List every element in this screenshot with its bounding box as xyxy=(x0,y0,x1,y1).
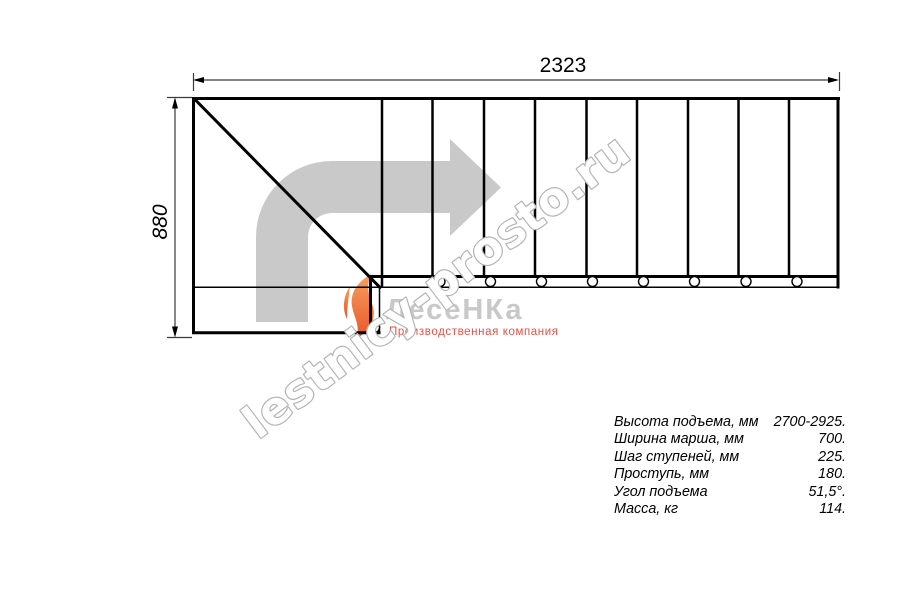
spec-value: 180. xyxy=(818,466,846,483)
bolt-circle xyxy=(792,277,802,287)
spec-row: Масса, кг 114. xyxy=(614,501,846,518)
spec-table: Высота подъема, мм 2700-2925. Ширина мар… xyxy=(614,414,846,518)
bolt-circle xyxy=(741,277,751,287)
logo-flame-small-icon xyxy=(344,286,350,319)
dim-arrowhead xyxy=(193,77,204,83)
dim-width-label: 2323 xyxy=(540,54,587,77)
spec-value: 2700-2925. xyxy=(774,414,846,431)
spec-row: Высота подъема, мм 2700-2925. xyxy=(614,414,846,431)
spec-row: Шаг ступеней, мм 225. xyxy=(614,449,846,466)
spec-label: Угол подъема xyxy=(614,484,708,501)
dim-arrowhead xyxy=(828,77,839,83)
dim-arrowhead xyxy=(172,327,178,338)
staircase-drawing-page: ЛесеНКа Производственная компания xyxy=(0,0,900,600)
spec-label: Шаг ступеней, мм xyxy=(614,449,739,466)
dim-arrowhead xyxy=(172,98,178,109)
spec-value: 700. xyxy=(818,431,846,448)
spec-row: Проступь, мм 180. xyxy=(614,466,846,483)
spec-label: Высота подъема, мм xyxy=(614,414,759,431)
spec-label: Ширина марша, мм xyxy=(614,431,744,448)
bolt-circle xyxy=(537,277,547,287)
spec-value: 225. xyxy=(818,449,846,466)
spec-value: 51,5°. xyxy=(808,484,846,501)
spec-row: Ширина марша, мм 700. xyxy=(614,431,846,448)
dim-height-label: 880 xyxy=(149,204,172,239)
spec-value: 114. xyxy=(819,501,846,518)
bolt-circle xyxy=(639,277,649,287)
spec-row: Угол подъема 51,5°. xyxy=(614,484,846,501)
bolt-circle xyxy=(690,277,700,287)
bolt-circle xyxy=(588,277,598,287)
spec-label: Проступь, мм xyxy=(614,466,709,483)
spec-label: Масса, кг xyxy=(614,501,678,518)
